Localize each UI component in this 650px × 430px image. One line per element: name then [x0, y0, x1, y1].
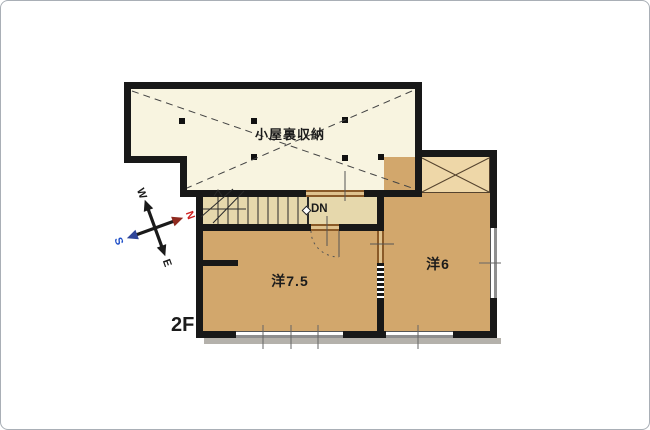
wall-bottom-a	[196, 331, 236, 338]
compass-west-letter: W	[134, 187, 149, 201]
compass-ns-shaft	[133, 221, 174, 236]
floor-label: 2F	[171, 314, 194, 337]
room6-door-opening	[377, 231, 384, 263]
wall-attic-top	[124, 82, 422, 89]
compass-east-letter: E	[160, 258, 174, 269]
wall-stub	[196, 260, 238, 266]
wall-middle-upper	[377, 190, 384, 231]
wall-stair-bottom-a	[203, 224, 311, 231]
wall-attic-left	[124, 82, 131, 163]
pillar	[342, 155, 348, 161]
wall-middle-lower	[377, 298, 384, 338]
stair-hall-floor	[203, 197, 379, 224]
window-room6-right	[490, 228, 497, 298]
wall-attic-right	[415, 82, 422, 197]
hall-door-opening	[311, 224, 339, 231]
room-6-label: 洋6	[408, 254, 468, 274]
window-room6-bottom	[386, 331, 453, 338]
wall-bottom-c	[453, 331, 497, 338]
attic-label: 小屋裏収納	[235, 124, 345, 143]
wall-attic-notch-bottom	[124, 156, 187, 163]
compass-south-arrowhead	[125, 230, 139, 243]
building-shadow	[204, 338, 501, 344]
closet-box	[418, 156, 490, 193]
wall-closet-top	[415, 150, 497, 157]
pillar	[378, 154, 384, 160]
room-7-5-label: 洋7.5	[250, 271, 330, 291]
compass-east-arrowhead	[157, 244, 170, 258]
compass-south-letter: S	[111, 236, 125, 247]
attic-door-opening	[306, 190, 364, 197]
window-room75	[236, 331, 343, 338]
folding-door	[377, 263, 384, 298]
pillar	[251, 154, 257, 160]
compass-icon: N S W E	[111, 184, 199, 272]
compass-we-shaft	[147, 207, 162, 248]
pillar	[342, 117, 348, 123]
wall-attic-bottom	[180, 190, 422, 197]
compass-north-arrowhead	[171, 213, 185, 226]
compass-west-arrowhead	[140, 198, 153, 212]
stairs-dn-label: DN	[311, 203, 328, 215]
pillar	[179, 118, 185, 124]
floor-plan-canvas: DN 小屋裏収納 洋7.5 洋6 2F N S W E	[0, 0, 650, 430]
compass-north-letter: N	[183, 210, 197, 222]
